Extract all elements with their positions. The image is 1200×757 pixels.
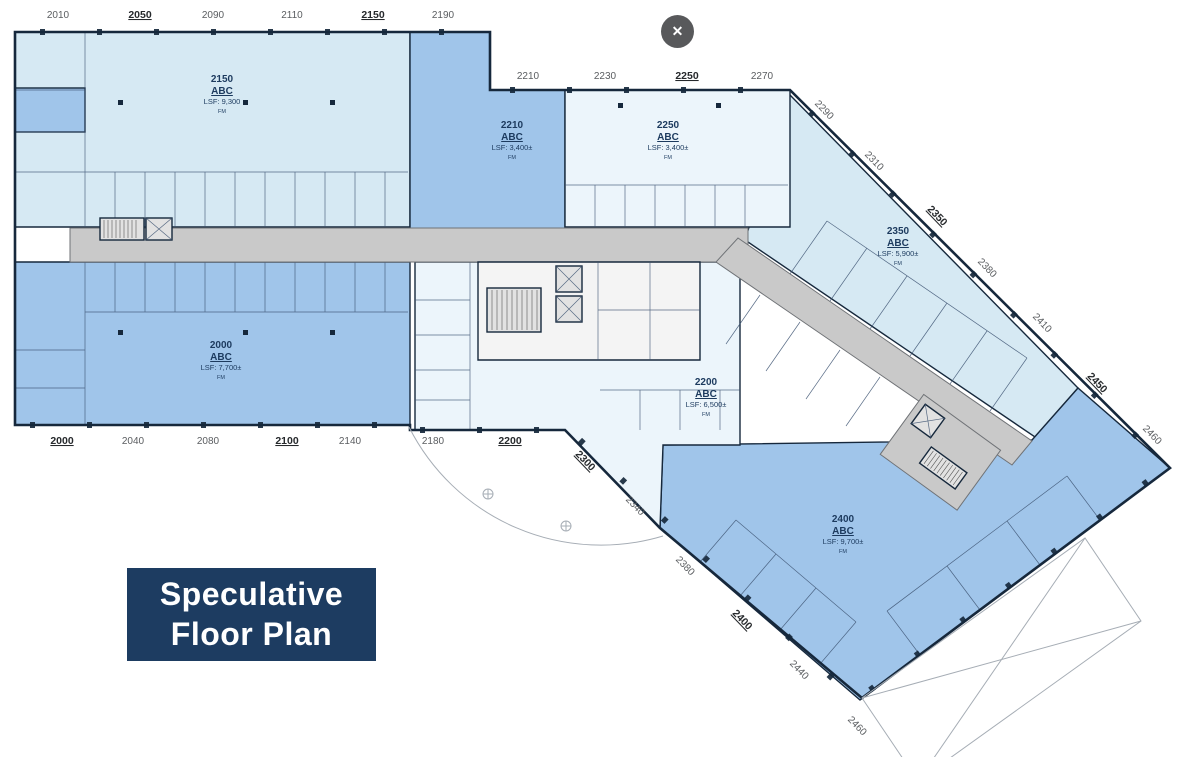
suite-number: 2210 bbox=[501, 120, 524, 131]
dimension-label: 2180 bbox=[422, 436, 445, 447]
survey-marker bbox=[483, 489, 571, 531]
suite-number: 2000 bbox=[210, 340, 233, 351]
stair-core bbox=[487, 288, 541, 332]
suite-area: LSF: 6,500± bbox=[686, 400, 727, 409]
close-icon: ✕ bbox=[672, 23, 684, 40]
dimension-label: 2380 bbox=[673, 554, 697, 578]
dimension-label: 2460 bbox=[845, 714, 869, 738]
dimension-label: 2400 bbox=[730, 607, 755, 632]
dimension-label: 2090 bbox=[202, 10, 225, 21]
suite-2250-area bbox=[565, 90, 790, 227]
dimension-label: 2450 bbox=[1085, 370, 1110, 395]
suite-note: FM bbox=[702, 412, 710, 418]
suite-area: LSF: 3,400± bbox=[492, 143, 533, 152]
dimension-label: 2440 bbox=[787, 658, 811, 682]
suite-tenant: ABC bbox=[657, 132, 679, 143]
dimension-label: 2080 bbox=[197, 436, 220, 447]
dimension-label: 2230 bbox=[594, 71, 617, 82]
dimension-label: 2040 bbox=[122, 436, 145, 447]
plan-title-badge: Speculative Floor Plan bbox=[127, 568, 376, 661]
dimension-label: 2050 bbox=[128, 9, 152, 21]
dimension-label: 2140 bbox=[339, 436, 362, 447]
dimension-label: 2100 bbox=[275, 435, 299, 447]
suite-note: FM bbox=[508, 155, 516, 161]
suite-number: 2200 bbox=[695, 377, 718, 388]
dimension-label: 2150 bbox=[361, 9, 385, 21]
plan-title-line1: Speculative bbox=[160, 575, 343, 614]
suite-area: LSF: 9,700± bbox=[823, 537, 864, 546]
suite-area: LSF: 9,300 bbox=[204, 97, 241, 106]
suite-2210-area bbox=[410, 32, 565, 240]
suite-area: LSF: 7,700± bbox=[201, 363, 242, 372]
dimension-label: 2190 bbox=[432, 10, 455, 21]
corner-room-area bbox=[15, 88, 85, 132]
suite-note: FM bbox=[839, 549, 847, 555]
suite-tenant: ABC bbox=[501, 132, 523, 143]
dimension-label: 2460 bbox=[1140, 423, 1164, 447]
suite-note: FM bbox=[894, 261, 902, 267]
suite-tenant: ABC bbox=[210, 352, 232, 363]
dimension-label: 2290 bbox=[812, 98, 836, 122]
dimension-label: 2310 bbox=[862, 149, 886, 173]
dimension-label: 2270 bbox=[751, 71, 774, 82]
dimension-label: 2210 bbox=[517, 71, 540, 82]
dimension-label: 2350 bbox=[925, 203, 950, 228]
stair-west bbox=[100, 218, 144, 240]
suite-note: FM bbox=[218, 109, 226, 115]
dimension-label: 2200 bbox=[498, 435, 522, 447]
suite-number: 2350 bbox=[887, 226, 910, 237]
suite-tenant: ABC bbox=[832, 526, 854, 537]
suite-note: FM bbox=[664, 155, 672, 161]
close-button[interactable]: ✕ bbox=[661, 15, 694, 48]
suite-note: FM bbox=[217, 375, 225, 381]
suite-number: 2150 bbox=[211, 74, 234, 85]
suite-number: 2400 bbox=[832, 514, 855, 525]
lightbox-overlay: 2150 ABC LSF: 9,300 FM 2210 ABC LSF: 3,4… bbox=[0, 0, 1200, 757]
suite-tenant: ABC bbox=[887, 238, 909, 249]
suite-area: LSF: 5,900± bbox=[878, 249, 919, 258]
dimension-label: 2000 bbox=[50, 435, 74, 447]
plan-title-line2: Floor Plan bbox=[171, 615, 332, 654]
suite-area: LSF: 3,400± bbox=[648, 143, 689, 152]
suite-tenant: ABC bbox=[211, 86, 233, 97]
dimension-label: 2110 bbox=[281, 10, 303, 21]
suite-number: 2250 bbox=[657, 120, 680, 131]
suite-tenant: ABC bbox=[695, 389, 717, 400]
dimension-label: 2010 bbox=[47, 10, 70, 21]
dimension-label: 2250 bbox=[675, 70, 699, 82]
